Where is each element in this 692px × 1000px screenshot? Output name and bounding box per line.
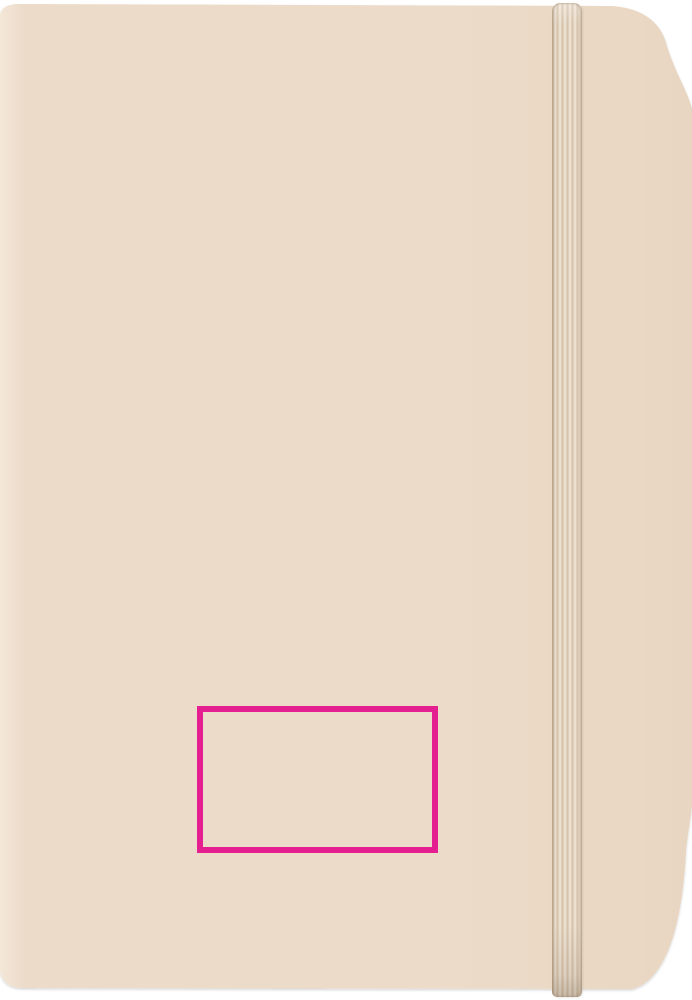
print-area-outline[interactable] xyxy=(197,706,438,853)
product-mockup xyxy=(0,0,692,1000)
elastic-band xyxy=(552,3,582,997)
